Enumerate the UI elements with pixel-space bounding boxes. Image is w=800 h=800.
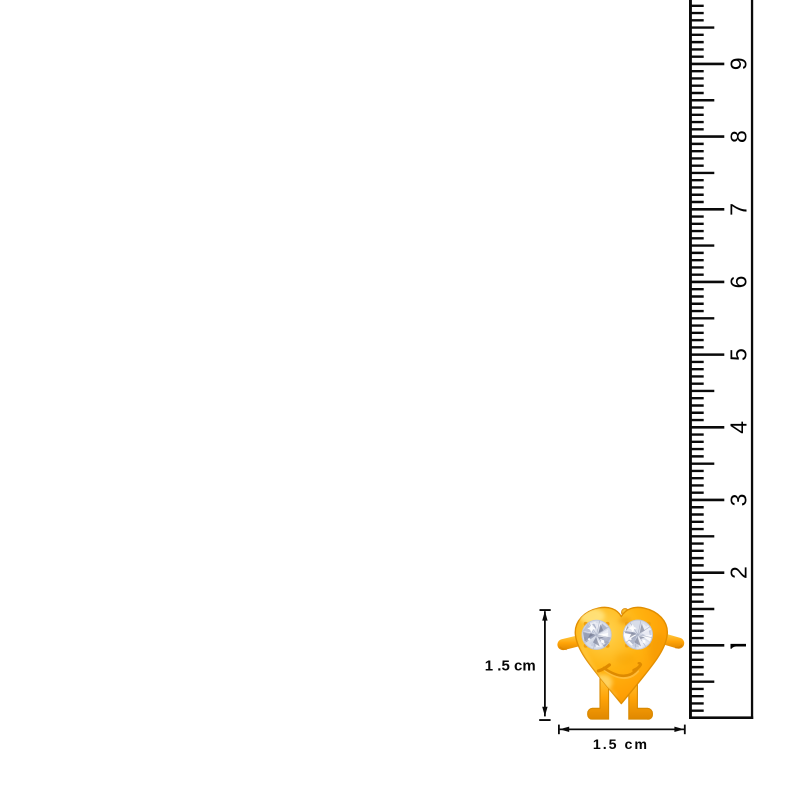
svg-text:5: 5 — [725, 348, 751, 361]
svg-text:7: 7 — [725, 203, 751, 216]
svg-text:1.5 cm: 1.5 cm — [593, 737, 649, 753]
svg-text:8: 8 — [725, 130, 751, 143]
svg-text:9: 9 — [725, 58, 751, 71]
svg-text:1 .5 cm: 1 .5 cm — [485, 658, 536, 675]
svg-text:3: 3 — [725, 494, 751, 507]
svg-text:6: 6 — [725, 276, 751, 289]
svg-text:4: 4 — [725, 421, 751, 434]
svg-text:2: 2 — [725, 566, 751, 579]
